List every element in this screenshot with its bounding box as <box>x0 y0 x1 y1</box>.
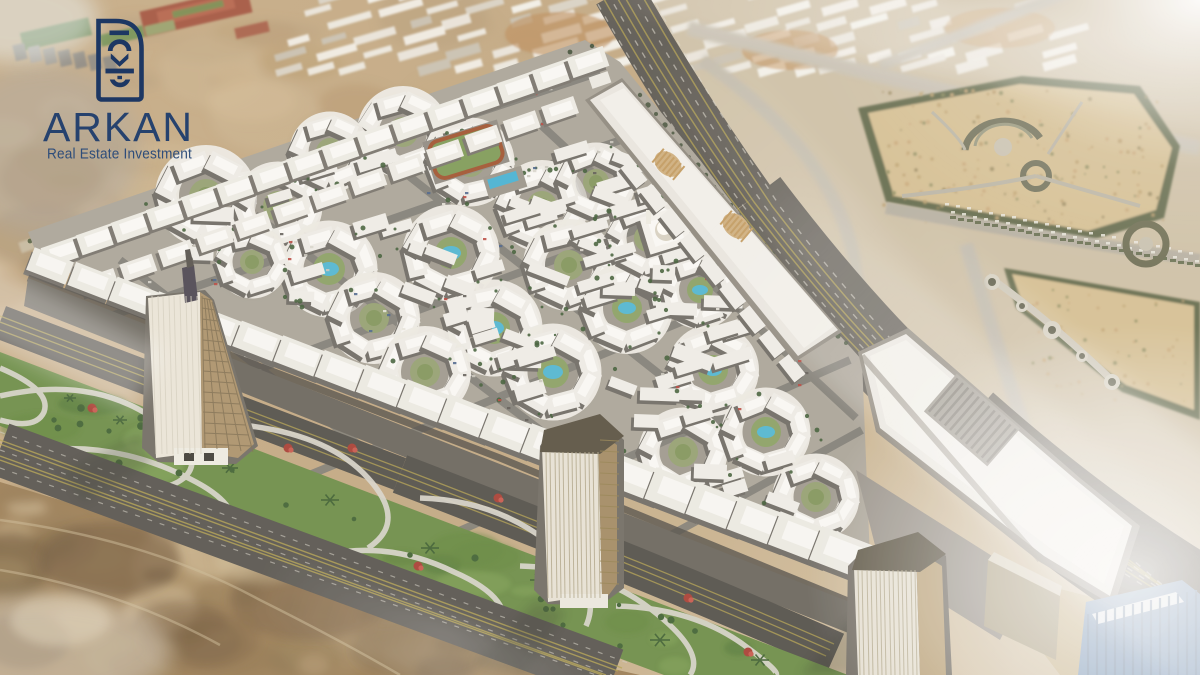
svg-text:ARKAN: ARKAN <box>43 104 195 150</box>
svg-text:Real Estate Investment: Real Estate Investment <box>47 147 192 163</box>
